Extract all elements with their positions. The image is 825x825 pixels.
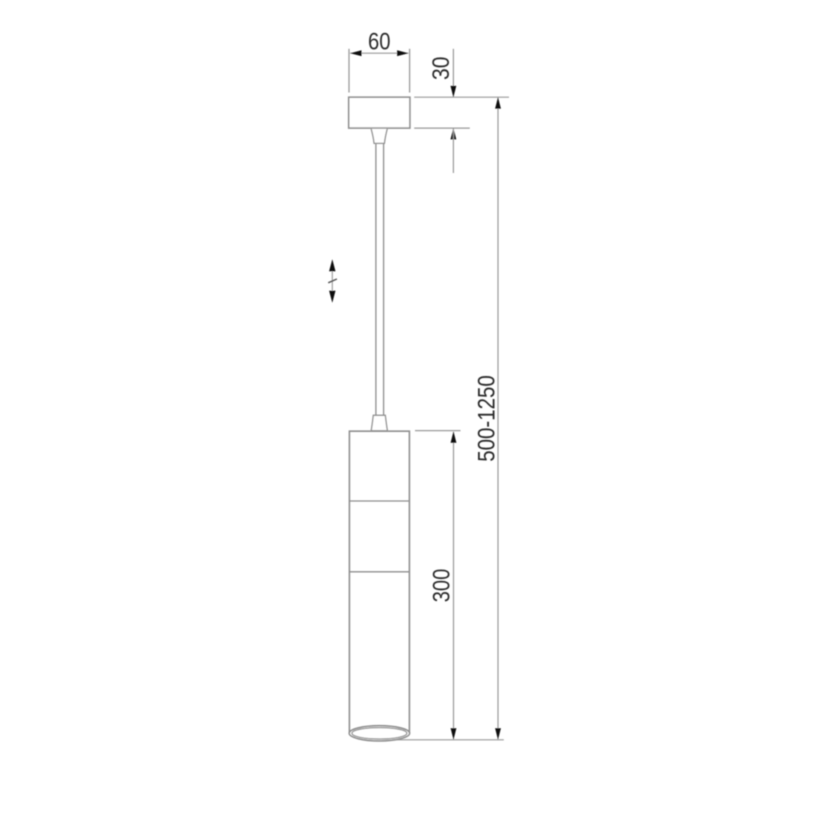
svg-text:60: 60	[368, 28, 391, 55]
svg-text:500-1250: 500-1250	[474, 375, 501, 462]
svg-text:30: 30	[428, 56, 455, 80]
svg-text:300: 300	[428, 569, 455, 603]
